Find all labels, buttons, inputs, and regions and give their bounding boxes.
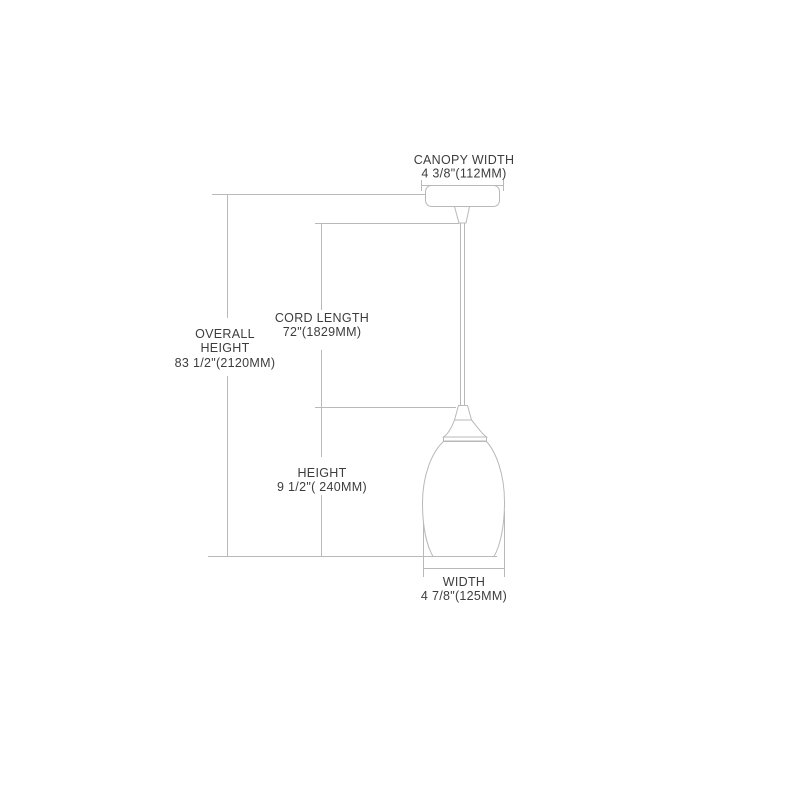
width-value: 4 7/8"(125MM) (421, 589, 507, 603)
socket-bell-outline (444, 420, 487, 437)
pendant-dimension-diagram: CANOPY WIDTH 4 3/8"(112MM) OVERALL HEIGH… (0, 0, 800, 800)
overall-height-label-line2: HEIGHT (200, 341, 249, 355)
height-value: 9 1/2"( 240MM) (277, 480, 367, 494)
pendant-fixture (423, 186, 505, 557)
cord-lines (461, 223, 465, 406)
overall-height-label-line1: OVERALL (195, 327, 255, 341)
stem-outline (455, 207, 470, 224)
socket-collar-outline (455, 406, 472, 421)
diagram-canvas: CANOPY WIDTH 4 3/8"(112MM) OVERALL HEIGH… (0, 0, 800, 800)
shade-outline (423, 442, 505, 557)
width-label: WIDTH (443, 575, 485, 589)
overall-height-value: 83 1/2"(2120MM) (175, 356, 276, 370)
canopy-width-value: 4 3/8"(112MM) (421, 167, 506, 181)
height-label: HEIGHT (297, 466, 346, 480)
shade-neck-ring (444, 437, 487, 441)
cord-length-label: CORD LENGTH (275, 311, 369, 325)
canopy-outline (426, 186, 500, 207)
canopy-width-label: CANOPY WIDTH (414, 153, 515, 167)
cord-length-value: 72"(1829MM) (283, 325, 362, 339)
